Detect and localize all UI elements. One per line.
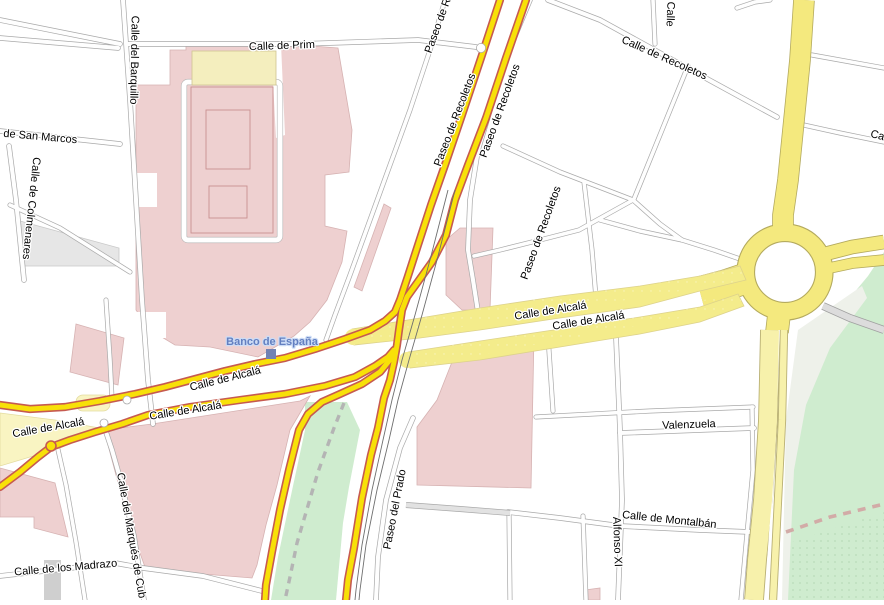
svg-text:Calle del Barquillo: Calle del Barquillo: [127, 16, 141, 105]
svg-text:Valenzuela: Valenzuela: [662, 418, 717, 432]
svg-text:Calle de Prim: Calle de Prim: [249, 39, 315, 53]
svg-text:Calle: Calle: [664, 1, 677, 26]
svg-text:Banco de España: Banco de España: [226, 336, 319, 348]
svg-text:Alfonso XI: Alfonso XI: [610, 517, 624, 568]
